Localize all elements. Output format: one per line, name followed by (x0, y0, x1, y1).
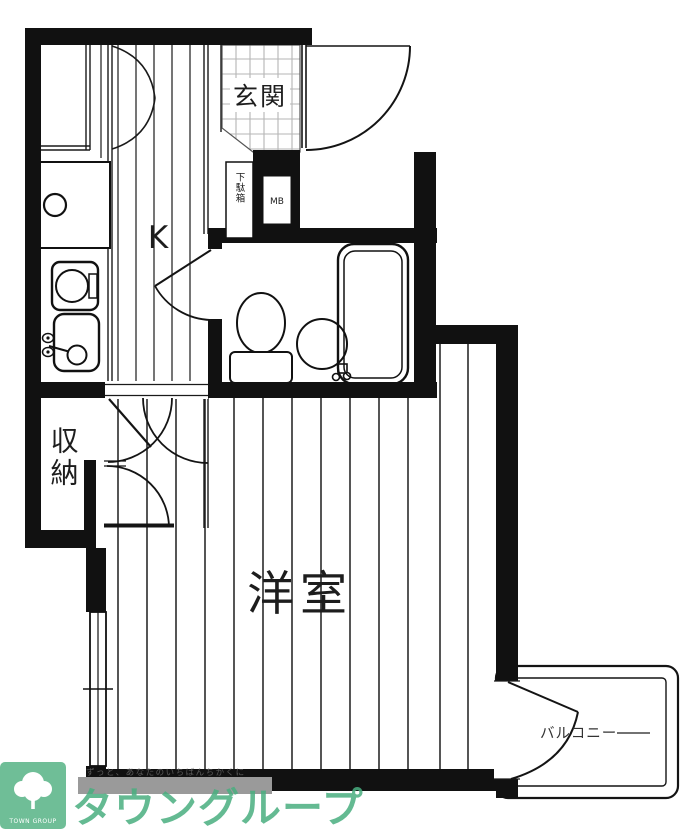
burner-icon (44, 194, 66, 216)
wall-left-lower (86, 548, 106, 612)
toilet-tank (230, 352, 292, 383)
meter-box: MB (263, 176, 291, 224)
logo-caption-text: TOWN GROUP (8, 818, 56, 825)
wall-left (25, 28, 41, 548)
entrance-label: 玄関 (233, 82, 287, 111)
shoe-box: 下駄箱 (226, 162, 253, 238)
wall-right-upper (414, 152, 436, 398)
wall-bath-bottom (208, 382, 437, 398)
wall-right-stub (496, 779, 518, 798)
floorplan-drawing: 下駄箱 MB 玄関 K 収納 洋室 バルコニー ずっと、あなたのいちばんちかくに… (0, 0, 700, 829)
meter-box-label: MB (270, 197, 284, 207)
storage-label: 収納 (47, 426, 80, 490)
washbasin-icon (297, 319, 347, 369)
wall-storage-top (25, 382, 105, 398)
wall-right (496, 344, 518, 681)
company-logo: TOWN GROUP (0, 762, 66, 829)
balcony-label: バルコニー (540, 726, 617, 742)
kitchen-label: K (148, 220, 169, 256)
kitchen-counter (38, 162, 110, 248)
wall-storage-right (84, 460, 96, 548)
tagline-text: ずっと、あなたのいちばんちかくに (86, 767, 246, 778)
floorplan-page: 下駄箱 MB 玄関 K 収納 洋室 バルコニー ずっと、あなたのいちばんちかくに… (0, 0, 700, 829)
western-room-label: 洋室 (247, 567, 353, 622)
washer-pan-icon (52, 262, 98, 310)
company-name-text: タウングループ (72, 784, 364, 829)
toilet-icon (237, 293, 285, 353)
shoe-box-label: 下駄箱 (234, 172, 246, 204)
wall-top (25, 28, 312, 45)
wall-room-top-right (418, 325, 518, 344)
